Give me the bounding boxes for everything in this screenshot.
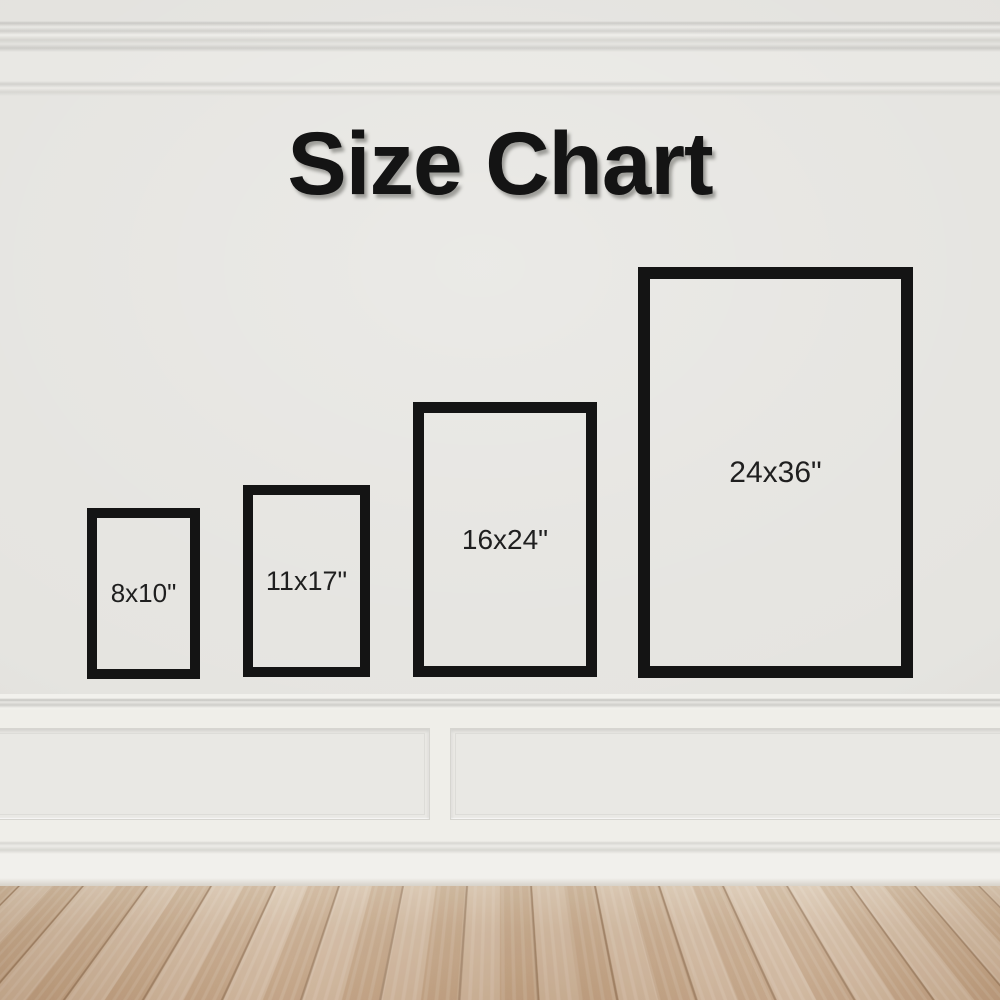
floor-planks [0, 886, 1000, 1000]
wainscot-panel-right-inner [455, 733, 1000, 815]
size-chart-scene: Size Chart 8x10" 11x17" 16x24" 24x36" [0, 0, 1000, 1000]
size-label-16x24: 16x24" [462, 524, 548, 556]
size-label-11x17: 11x17" [266, 566, 347, 597]
size-label-24x36: 24x36" [729, 456, 821, 490]
crown-molding [0, 0, 1000, 96]
size-frame-8x10: 8x10" [87, 508, 200, 679]
wainscot-panel-left-inner [0, 733, 425, 815]
size-label-8x10: 8x10" [111, 578, 177, 609]
wainscot-panel-left [0, 728, 430, 820]
wood-floor [0, 886, 1000, 1000]
wainscot-panel-right [450, 728, 1000, 820]
page-title: Size Chart [0, 116, 1000, 210]
size-frame-11x17: 11x17" [243, 485, 370, 677]
size-frame-24x36: 24x36" [638, 267, 913, 678]
size-frame-16x24: 16x24" [413, 402, 597, 677]
wainscoting [0, 694, 1000, 886]
